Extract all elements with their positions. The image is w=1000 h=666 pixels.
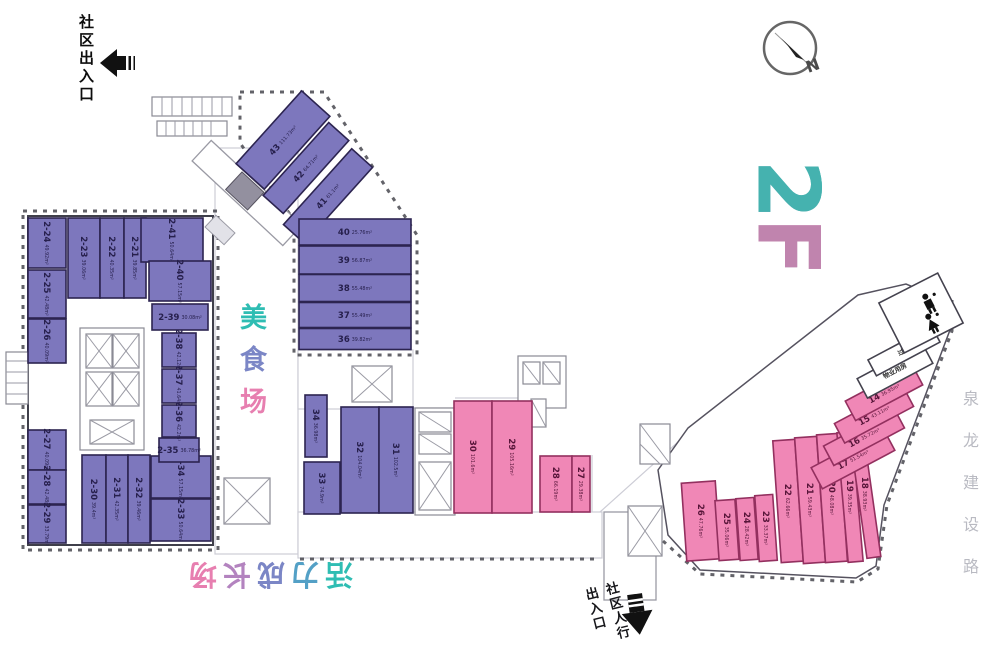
exit-arrow-left-icon <box>100 49 135 77</box>
unit-2-30: 2-3039.4m² <box>82 455 106 543</box>
stairs-icon <box>352 366 392 402</box>
escalator-icon <box>628 506 662 556</box>
floorplan-2f: 43111.73m²4264.71m²4161.1m²4025.76m²3956… <box>0 0 1000 666</box>
label-char: 力 <box>285 558 319 591</box>
escalator-icon <box>152 97 232 136</box>
elevator-core <box>80 328 144 450</box>
elevator-icon <box>640 424 670 464</box>
unit-31: 31102.5m² <box>379 407 413 513</box>
label-char: 场 <box>183 558 217 591</box>
label-char: 场 <box>235 387 266 429</box>
label-char: 活 <box>319 558 353 591</box>
road-name-label: 泉龙建设路 <box>957 390 981 600</box>
label-char: 2 <box>738 160 838 218</box>
unit-36: 3639.82m² <box>299 329 411 350</box>
unit-2-29: 2-2933.79m² <box>28 502 66 546</box>
unit-30: 30101.6m² <box>454 401 492 513</box>
unit-32: 32104.04m² <box>341 407 379 513</box>
floor-logo: 2F <box>745 160 830 270</box>
unit-28: 2866.19m² <box>540 456 572 512</box>
unit-26: 2647.76m² <box>681 481 720 561</box>
central-shaft <box>415 408 455 515</box>
bottom-corridor <box>298 512 602 558</box>
unit-2-25: 2-2542.48m² <box>28 270 66 318</box>
unit-38: 3855.48m² <box>299 275 411 302</box>
floorplan-canvas: 43111.73m²4264.71m²4161.1m²4025.76m²3956… <box>0 0 1000 666</box>
small-shaft <box>531 399 546 427</box>
community-entrance-label: 社区出入口 <box>76 14 97 104</box>
unit-2-38: 2-3842.12m² <box>162 328 196 372</box>
unit-2-22: 2-2240.35m² <box>100 218 124 298</box>
unit-2-26: 2-2640.09m² <box>28 319 66 363</box>
unit-37: 3755.49m² <box>299 303 411 328</box>
unit-2-23: 2-2339.06m² <box>68 218 100 298</box>
unit-33: 3374.9m² <box>304 462 340 514</box>
unit-2-33: 2-3350.64m² <box>151 498 211 542</box>
unit-27: 2729.38m² <box>572 456 590 512</box>
growth-area-label: 活力成长场 <box>183 556 353 596</box>
unit-2-31: 2-3142.35m² <box>106 455 128 543</box>
label-char: 食 <box>235 345 266 387</box>
unit-2-32: 2-3239.46m² <box>128 455 150 543</box>
unit-2-39: 2-3930.08m² <box>152 304 208 330</box>
label-char: 长 <box>217 558 251 591</box>
unit-34: 3436.98m² <box>305 395 327 457</box>
unit-25: 2535.06m² <box>715 499 739 560</box>
unit-2-35: 2-3536.78m² <box>157 438 201 462</box>
unit-23: 2333.37m² <box>755 494 778 561</box>
unit-29: 29105.16m² <box>492 401 532 513</box>
unit-2-24: 2-2449.92m² <box>28 218 66 268</box>
unit-39: 3956.87m² <box>299 246 411 274</box>
label-char: 成 <box>251 558 285 591</box>
entrance-canopy <box>6 352 28 404</box>
escalator-icon <box>224 478 270 524</box>
label-char: F <box>738 217 838 274</box>
unit-2-40: 2-4057.15m² <box>149 259 211 303</box>
unit-2-41: 2-4150.64m² <box>141 218 203 262</box>
label-char: 美 <box>235 303 266 345</box>
unit-40: 4025.76m² <box>299 219 411 245</box>
food-court-label: 美食场 <box>231 303 270 429</box>
